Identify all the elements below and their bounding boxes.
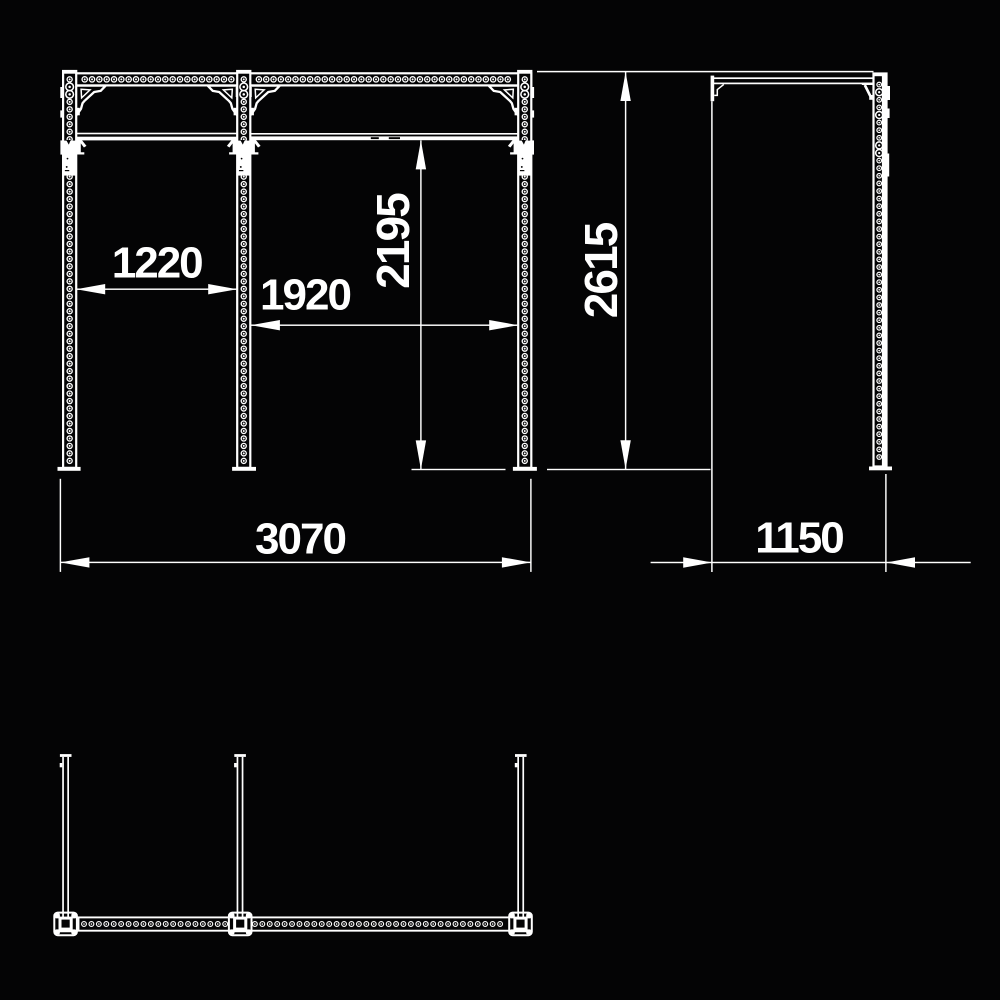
svg-text:2615: 2615 [575, 222, 627, 318]
svg-text:1920: 1920 [260, 271, 350, 320]
svg-text:1150: 1150 [755, 514, 843, 563]
svg-text:1220: 1220 [112, 238, 202, 287]
svg-text:2195: 2195 [367, 193, 419, 289]
svg-text:3070: 3070 [255, 514, 345, 563]
